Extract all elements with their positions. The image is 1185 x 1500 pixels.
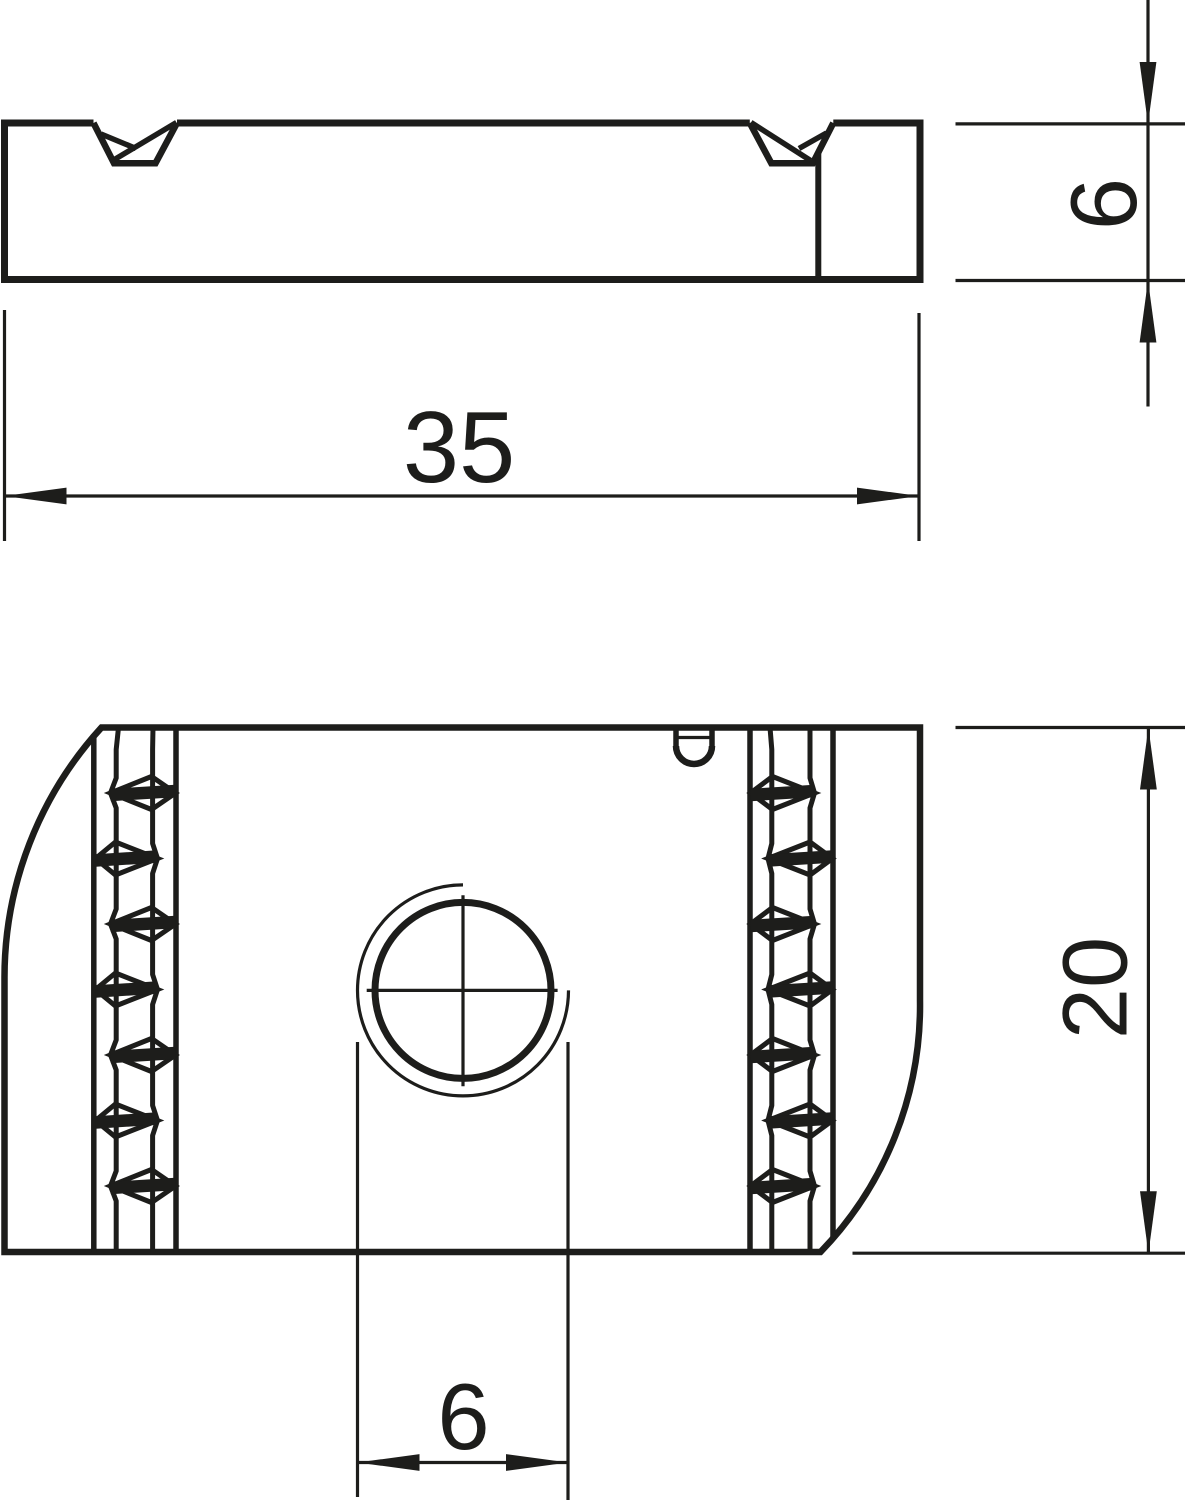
svg-text:20: 20 xyxy=(1045,937,1147,1039)
svg-text:6: 6 xyxy=(1051,178,1156,230)
svg-text:35: 35 xyxy=(403,392,515,504)
svg-text:6: 6 xyxy=(437,1364,489,1469)
